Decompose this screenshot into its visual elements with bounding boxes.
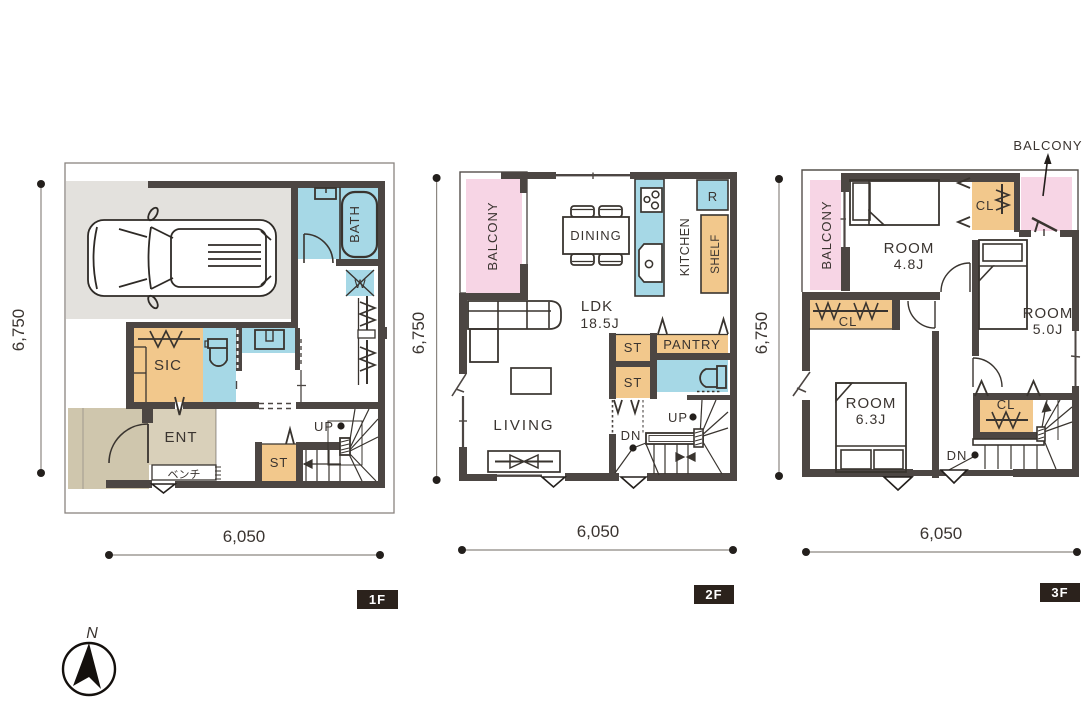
- svg-text:CL: CL: [839, 314, 858, 329]
- svg-text:LDK: LDK: [581, 298, 613, 315]
- svg-text:1F: 1F: [369, 592, 386, 607]
- svg-text:W: W: [354, 277, 366, 291]
- svg-text:ENT: ENT: [165, 429, 198, 446]
- svg-text:DINING: DINING: [570, 228, 622, 243]
- svg-text:UP: UP: [668, 410, 688, 425]
- svg-text:ST: ST: [270, 455, 289, 470]
- svg-text:ROOM: ROOM: [884, 240, 935, 257]
- svg-text:R: R: [708, 189, 717, 204]
- svg-text:4.8J: 4.8J: [894, 256, 924, 272]
- svg-text:CL: CL: [997, 397, 1016, 412]
- svg-text:ST: ST: [624, 375, 643, 390]
- svg-text:KITCHEN: KITCHEN: [678, 218, 692, 276]
- svg-text:ROOM: ROOM: [1023, 305, 1074, 322]
- svg-text:3F: 3F: [1051, 585, 1068, 600]
- svg-text:DN: DN: [947, 448, 968, 463]
- svg-text:6,750: 6,750: [752, 312, 771, 355]
- svg-text:LIVING: LIVING: [493, 417, 554, 434]
- svg-text:DN: DN: [621, 428, 642, 443]
- svg-text:N: N: [86, 625, 98, 642]
- svg-text:SIC: SIC: [154, 357, 182, 374]
- svg-text:ST: ST: [624, 340, 643, 355]
- svg-text:SHELF: SHELF: [710, 234, 722, 274]
- svg-text:6,750: 6,750: [409, 312, 428, 355]
- svg-text:CL: CL: [976, 198, 995, 213]
- svg-text:UP: UP: [314, 419, 334, 434]
- svg-text:18.5J: 18.5J: [580, 315, 619, 331]
- svg-text:ROOM: ROOM: [846, 395, 897, 412]
- svg-text:6,050: 6,050: [223, 527, 266, 546]
- svg-text:6,050: 6,050: [920, 524, 963, 543]
- svg-text:6,750: 6,750: [9, 309, 28, 352]
- svg-text:2F: 2F: [705, 587, 722, 602]
- svg-text:BALCONY: BALCONY: [485, 201, 500, 270]
- svg-text:6.3J: 6.3J: [856, 411, 886, 427]
- svg-text:BALCONY: BALCONY: [819, 200, 834, 269]
- svg-text:BATH: BATH: [347, 205, 362, 243]
- svg-text:PANTRY: PANTRY: [663, 337, 721, 352]
- svg-text:ベンチ: ベンチ: [168, 468, 201, 481]
- svg-text:6,050: 6,050: [577, 522, 620, 541]
- svg-text:BALCONY: BALCONY: [1013, 138, 1082, 153]
- svg-text:5.0J: 5.0J: [1033, 321, 1063, 337]
